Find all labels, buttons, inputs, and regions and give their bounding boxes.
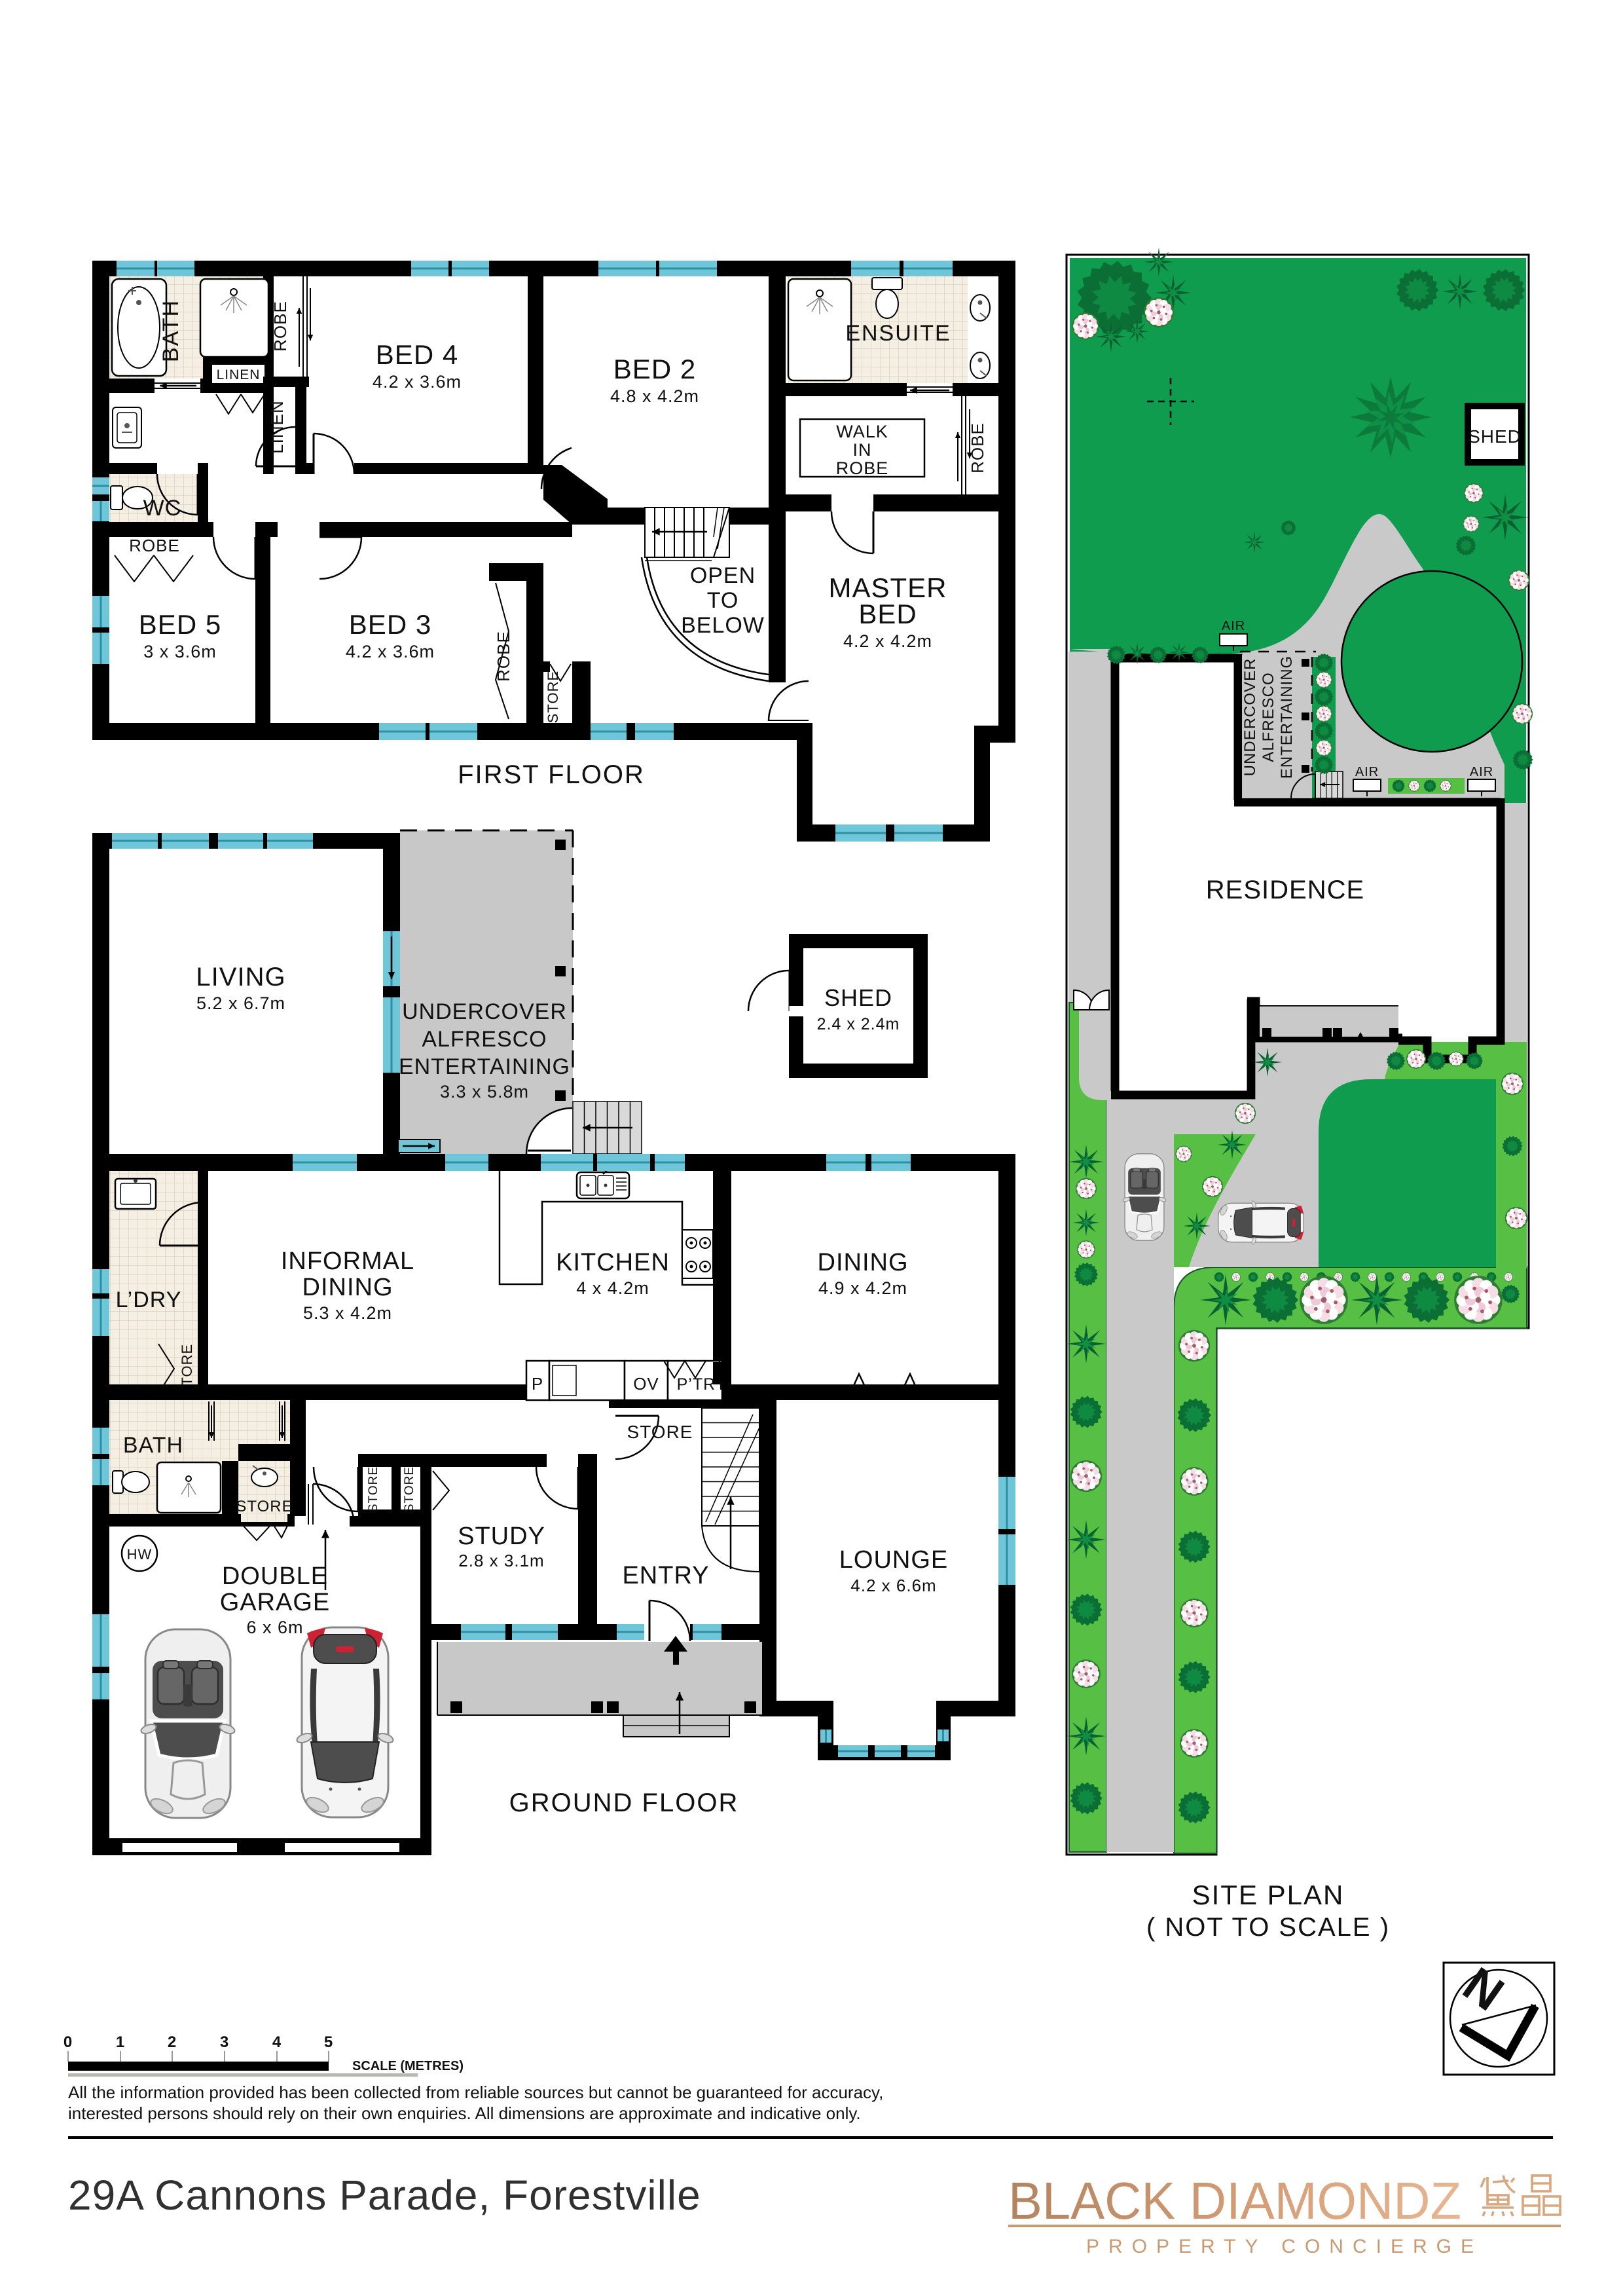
svg-text:5: 5 [324, 2033, 333, 2051]
svg-text:ENTERTAINING: ENTERTAINING [399, 1054, 570, 1079]
svg-text:3: 3 [220, 2033, 229, 2051]
svg-text:FIRST FLOOR: FIRST FLOOR [458, 760, 645, 789]
svg-text:4.9 x 4.2m: 4.9 x 4.2m [818, 1278, 907, 1298]
svg-text:ROBE: ROBE [968, 422, 987, 473]
svg-text:ALFRESCO: ALFRESCO [1260, 672, 1277, 762]
svg-text:4 x 4.2m: 4 x 4.2m [576, 1278, 649, 1298]
svg-text:WC: WC [143, 496, 182, 521]
svg-text:5.2 x 6.7m: 5.2 x 6.7m [196, 993, 285, 1013]
svg-text:DOUBLE: DOUBLE [222, 1563, 328, 1590]
svg-text:STORE: STORE [627, 1422, 693, 1442]
svg-text:ENTERTAINING: ENTERTAINING [1278, 656, 1296, 779]
svg-text:BED 5: BED 5 [139, 609, 221, 640]
svg-text:29A Cannons Parade, Forestvill: 29A Cannons Parade, Forestville [68, 2172, 701, 2219]
svg-text:ROBE: ROBE [129, 536, 180, 555]
svg-text:0: 0 [64, 2033, 73, 2051]
svg-text:BELOW: BELOW [681, 613, 765, 638]
svg-text:AIR: AIR [1470, 765, 1493, 779]
svg-text:STORE: STORE [236, 1498, 293, 1515]
svg-text:LINEN: LINEN [267, 400, 287, 454]
svg-text:HW: HW [127, 1546, 153, 1563]
svg-text:BLACK DIAMONDZ: BLACK DIAMONDZ [1008, 2172, 1461, 2230]
svg-text:4.2 x 4.2m: 4.2 x 4.2m [843, 631, 932, 651]
svg-text:1: 1 [116, 2033, 125, 2051]
svg-text:BED 4: BED 4 [376, 339, 458, 370]
svg-text:STORE: STORE [403, 1466, 416, 1512]
svg-text:BATH: BATH [158, 299, 183, 362]
svg-text:UNDERCOVER: UNDERCOVER [1241, 658, 1259, 777]
svg-text:BED 2: BED 2 [613, 354, 696, 384]
svg-text:LIVING: LIVING [196, 963, 285, 991]
svg-text:2.4 x 2.4m: 2.4 x 2.4m [817, 1015, 900, 1033]
svg-text:STUDY: STUDY [458, 1523, 545, 1550]
svg-text:ENTRY: ENTRY [622, 1562, 709, 1589]
svg-text:INFORMAL: INFORMAL [281, 1248, 414, 1275]
svg-text:4.2 x 3.6m: 4.2 x 3.6m [373, 372, 462, 392]
svg-text:LOUNGE: LOUNGE [839, 1546, 948, 1574]
svg-text:ENSUITE: ENSUITE [845, 321, 951, 346]
svg-text:STORE: STORE [545, 671, 561, 723]
svg-text:5.3 x 4.2m: 5.3 x 4.2m [303, 1303, 392, 1323]
svg-text:ROBE: ROBE [270, 301, 290, 352]
svg-text:( NOT TO SCALE ): ( NOT TO SCALE ) [1146, 1913, 1390, 1942]
svg-text:TO: TO [707, 588, 739, 613]
svg-text:4: 4 [272, 2033, 282, 2051]
svg-text:P: P [532, 1374, 543, 1394]
svg-text:STORE: STORE [367, 1466, 380, 1512]
svg-text:4.2 x 3.6m: 4.2 x 3.6m [346, 642, 435, 661]
svg-text:OPEN: OPEN [690, 563, 756, 588]
svg-text:DINING: DINING [302, 1274, 393, 1301]
svg-text:DINING: DINING [818, 1249, 909, 1276]
svg-text:2.8 x 3.1m: 2.8 x 3.1m [458, 1551, 544, 1570]
svg-text:UNDERCOVER: UNDERCOVER [402, 999, 567, 1024]
svg-text:4.8 x 4.2m: 4.8 x 4.2m [610, 386, 699, 406]
svg-text:AIR: AIR [1355, 765, 1379, 779]
svg-text:L’DRY: L’DRY [116, 1287, 182, 1312]
svg-text:RESIDENCE: RESIDENCE [1206, 876, 1364, 904]
svg-text:OV: OV [633, 1374, 659, 1394]
svg-text:SHED: SHED [824, 984, 892, 1011]
svg-text:BATH: BATH [123, 1433, 183, 1458]
svg-text:PROPERTY CONCIERGE: PROPERTY CONCIERGE [1086, 2236, 1483, 2257]
svg-text:2: 2 [168, 2033, 177, 2051]
svg-text:AIR: AIR [1222, 619, 1245, 633]
svg-text:GARAGE: GARAGE [220, 1589, 331, 1616]
svg-text:ROBE: ROBE [836, 458, 889, 478]
svg-text:ROBE: ROBE [494, 631, 513, 682]
svg-text:LINEN: LINEN [217, 367, 261, 382]
svg-text:KITCHEN: KITCHEN [556, 1249, 670, 1276]
svg-text:3 x 3.6m: 3 x 3.6m [143, 642, 217, 661]
svg-text:ALFRESCO: ALFRESCO [422, 1027, 547, 1052]
svg-text:SHED: SHED [1468, 426, 1522, 447]
svg-text:WALK: WALK [836, 422, 888, 441]
svg-text:4.2 x 6.6m: 4.2 x 6.6m [850, 1576, 936, 1595]
svg-text:All the information provided h: All the information provided has been co… [68, 2083, 883, 2102]
svg-text:SITE PLAN: SITE PLAN [1192, 1879, 1345, 1910]
svg-text:IN: IN [853, 440, 872, 460]
svg-text:BED 3: BED 3 [349, 609, 431, 640]
svg-text:3.3 x 5.8m: 3.3 x 5.8m [440, 1082, 529, 1102]
svg-text:6 x 6m: 6 x 6m [246, 1618, 303, 1637]
svg-text:interested persons should rely: interested persons should rely on their … [68, 2103, 861, 2123]
svg-text:BED: BED [858, 599, 917, 629]
svg-text:GROUND FLOOR: GROUND FLOOR [509, 1788, 739, 1817]
svg-text:SCALE (METRES): SCALE (METRES) [352, 2059, 464, 2073]
